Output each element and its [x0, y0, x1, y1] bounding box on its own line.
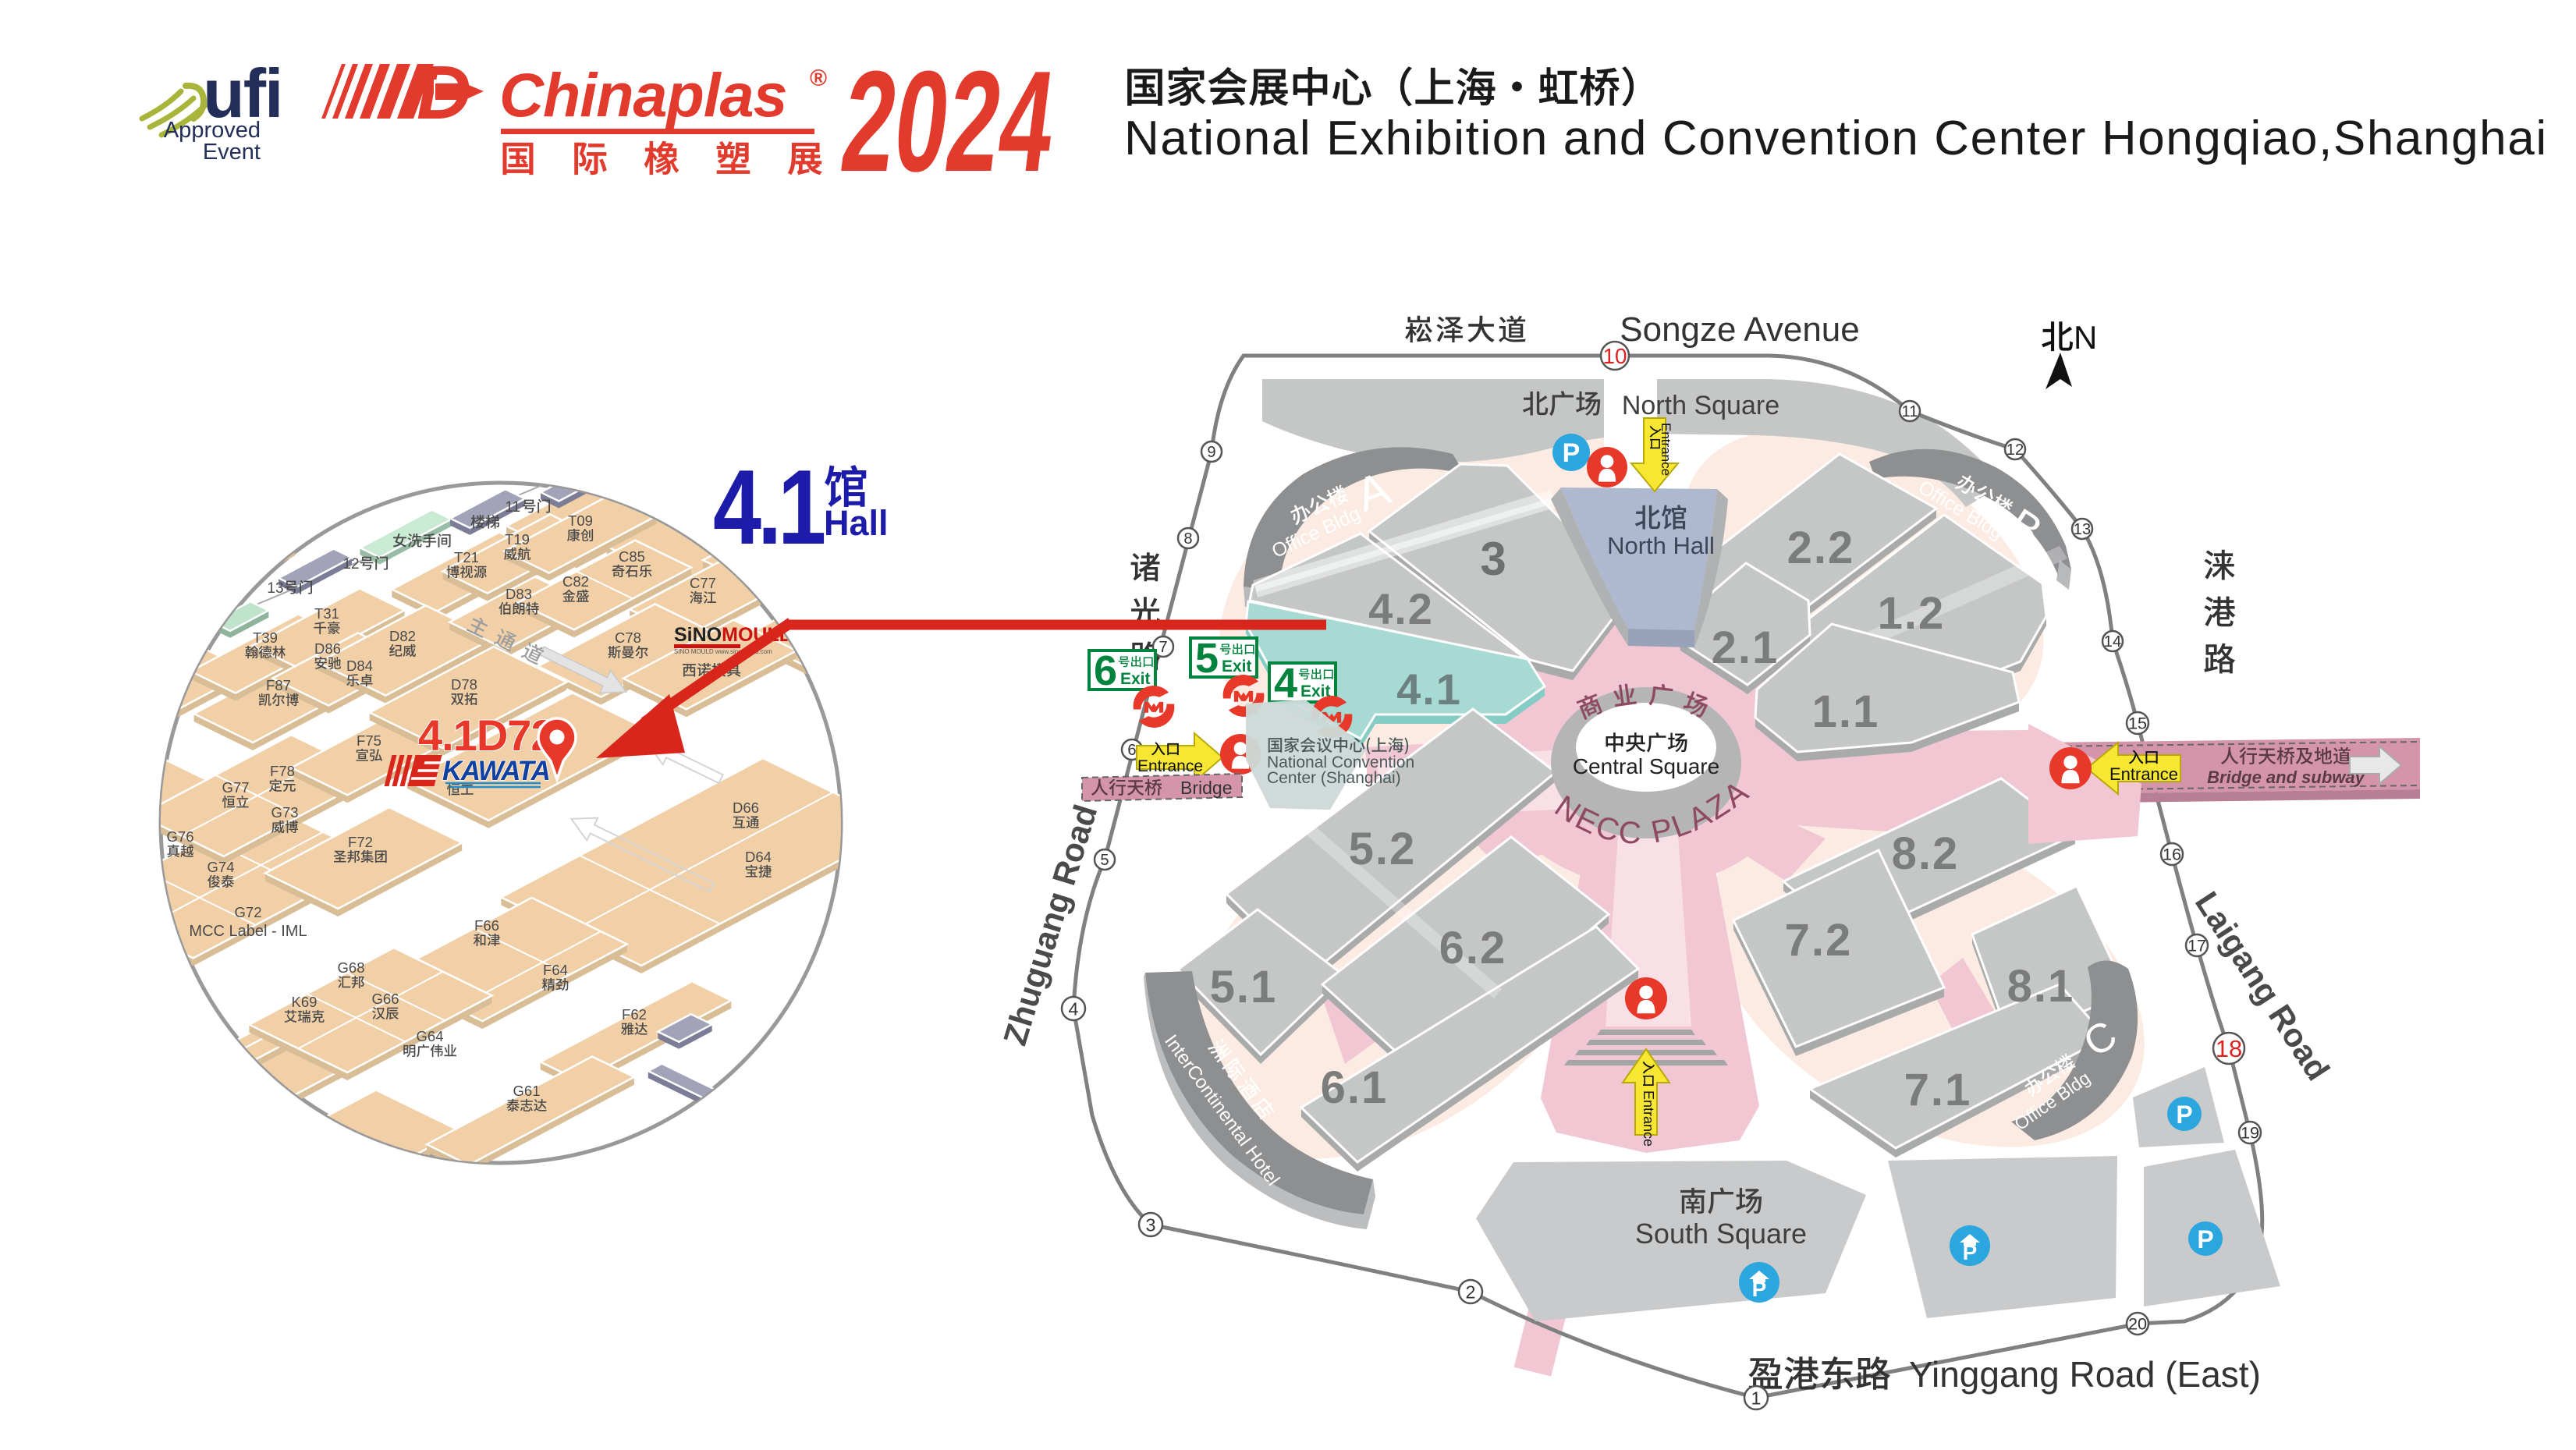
- svg-text:7.2: 7.2: [1785, 915, 1853, 966]
- svg-text:1.2: 1.2: [1878, 588, 1946, 639]
- svg-text:D66: D66: [733, 799, 759, 816]
- svg-text:16: 16: [2163, 845, 2181, 864]
- svg-text:Bridge and subway: Bridge and subway: [2207, 768, 2365, 787]
- svg-text:P: P: [2197, 1225, 2213, 1253]
- svg-text:4.1: 4.1: [1396, 665, 1462, 714]
- svg-text:F72: F72: [348, 834, 373, 850]
- svg-text:Central Square: Central Square: [1573, 754, 1719, 778]
- svg-text:P: P: [1563, 438, 1581, 468]
- svg-text:17: 17: [2187, 936, 2206, 955]
- svg-text:8.1: 8.1: [2007, 961, 2075, 1012]
- svg-text:4.1: 4.1: [713, 448, 824, 567]
- svg-text:T09: T09: [568, 512, 593, 529]
- svg-text:11: 11: [1902, 403, 1918, 420]
- svg-text:14: 14: [2104, 633, 2121, 651]
- svg-text:F87: F87: [266, 677, 291, 693]
- svg-text:2.1: 2.1: [1712, 622, 1779, 673]
- svg-text:5.1: 5.1: [1210, 962, 1278, 1012]
- svg-text:9: 9: [1207, 444, 1215, 461]
- svg-text:Exit: Exit: [1222, 658, 1252, 675]
- svg-text:Exit: Exit: [1120, 670, 1151, 688]
- svg-text:6: 6: [1127, 742, 1136, 759]
- svg-text:G76: G76: [167, 828, 194, 845]
- svg-text:4.2: 4.2: [1368, 584, 1434, 633]
- svg-text:F66: F66: [474, 917, 499, 934]
- svg-text:T19: T19: [505, 531, 530, 548]
- svg-text:G72: G72: [235, 904, 262, 920]
- svg-text:19: 19: [2241, 1123, 2259, 1143]
- svg-text:P: P: [1963, 1240, 1978, 1264]
- svg-text:N: N: [2074, 319, 2097, 356]
- svg-text:5.2: 5.2: [1349, 824, 1417, 874]
- svg-text:3: 3: [1480, 533, 1506, 585]
- svg-text:4: 4: [1274, 660, 1297, 707]
- svg-text:KAWATA: KAWATA: [442, 756, 549, 786]
- svg-text:D84: D84: [346, 658, 373, 674]
- svg-text:Songze Avenue: Songze Avenue: [1620, 310, 1859, 349]
- svg-text:Entrance: Entrance: [2109, 764, 2178, 784]
- svg-text:Hall: Hall: [824, 503, 889, 543]
- svg-text:G61: G61: [513, 1083, 541, 1099]
- svg-text:4.1D72: 4.1D72: [418, 711, 555, 760]
- svg-text:P: P: [2176, 1101, 2192, 1129]
- svg-text:2.2: 2.2: [1787, 523, 1855, 573]
- svg-text:T21: T21: [454, 549, 479, 565]
- svg-text:2024: 2024: [834, 41, 1063, 202]
- svg-text:12: 12: [2007, 441, 2024, 459]
- svg-text:D82: D82: [389, 628, 416, 644]
- svg-text:Entrance: Entrance: [1137, 757, 1203, 775]
- svg-text:D78: D78: [451, 676, 477, 693]
- svg-text:F62: F62: [622, 1006, 647, 1023]
- svg-text:10: 10: [1602, 344, 1627, 368]
- svg-text:2: 2: [1466, 1282, 1476, 1302]
- svg-text:®: ®: [810, 66, 827, 91]
- svg-text:T39: T39: [253, 629, 278, 646]
- svg-text:G66: G66: [372, 991, 399, 1007]
- svg-text:6.2: 6.2: [1439, 923, 1507, 973]
- svg-text:South Square: South Square: [1635, 1218, 1807, 1250]
- svg-text:7: 7: [1158, 639, 1167, 656]
- svg-text:Bridge: Bridge: [1180, 778, 1232, 798]
- svg-text:C82: C82: [562, 573, 589, 590]
- svg-text:20: 20: [2128, 1314, 2147, 1334]
- svg-text:G64: G64: [417, 1028, 444, 1044]
- svg-text:4: 4: [1069, 998, 1079, 1019]
- svg-text:G73: G73: [271, 804, 299, 821]
- svg-text:D64: D64: [745, 849, 772, 865]
- svg-text:C78: C78: [615, 629, 641, 646]
- svg-text:13: 13: [2074, 521, 2091, 538]
- svg-text:G77: G77: [222, 779, 250, 796]
- svg-text:8: 8: [1183, 530, 1192, 548]
- svg-text:T31: T31: [314, 605, 339, 622]
- svg-text:Yinggang Road (East): Yinggang Road (East): [1909, 1354, 2261, 1395]
- svg-text:3: 3: [1146, 1214, 1156, 1235]
- svg-text:G74: G74: [208, 859, 235, 875]
- svg-text:13: 13: [267, 580, 283, 597]
- svg-text:1: 1: [1751, 1388, 1762, 1408]
- svg-text:F78: F78: [270, 763, 295, 779]
- svg-text:12: 12: [342, 556, 359, 573]
- svg-text:Entrance: Entrance: [1659, 423, 1673, 476]
- svg-text:Entrance: Entrance: [1641, 1090, 1656, 1147]
- svg-text:5: 5: [1100, 852, 1109, 869]
- svg-text:6: 6: [1094, 647, 1117, 694]
- svg-text:G68: G68: [338, 959, 365, 976]
- svg-text:1.1: 1.1: [1812, 686, 1880, 737]
- svg-text:C85: C85: [619, 548, 645, 565]
- svg-text:K69: K69: [292, 994, 318, 1010]
- svg-text:North Hall: North Hall: [1607, 532, 1715, 559]
- svg-text:C77: C77: [690, 575, 716, 591]
- svg-text:P: P: [1752, 1277, 1767, 1301]
- svg-text:North Square: North Square: [1622, 391, 1779, 420]
- svg-text:F64: F64: [543, 962, 568, 978]
- svg-text:5: 5: [1195, 635, 1219, 682]
- svg-text:F75: F75: [357, 732, 381, 749]
- svg-text:Center (Shanghai): Center (Shanghai): [1267, 769, 1401, 787]
- svg-text:6.1: 6.1: [1321, 1062, 1389, 1113]
- svg-text:National Exhibition and Conven: National Exhibition and Convention Cente…: [1124, 112, 2548, 165]
- svg-text:Event: Event: [203, 140, 261, 165]
- svg-text:11: 11: [505, 499, 520, 516]
- svg-text:Chinaplas: Chinaplas: [499, 60, 787, 129]
- svg-text:7.1: 7.1: [1904, 1065, 1972, 1115]
- svg-text:8.2: 8.2: [1892, 828, 1960, 879]
- svg-text:15: 15: [2128, 714, 2147, 733]
- svg-text:D86: D86: [314, 640, 341, 657]
- svg-text:18: 18: [2216, 1035, 2242, 1062]
- svg-text:D83: D83: [506, 586, 532, 602]
- svg-text:MCC Label - IML: MCC Label - IML: [189, 923, 307, 940]
